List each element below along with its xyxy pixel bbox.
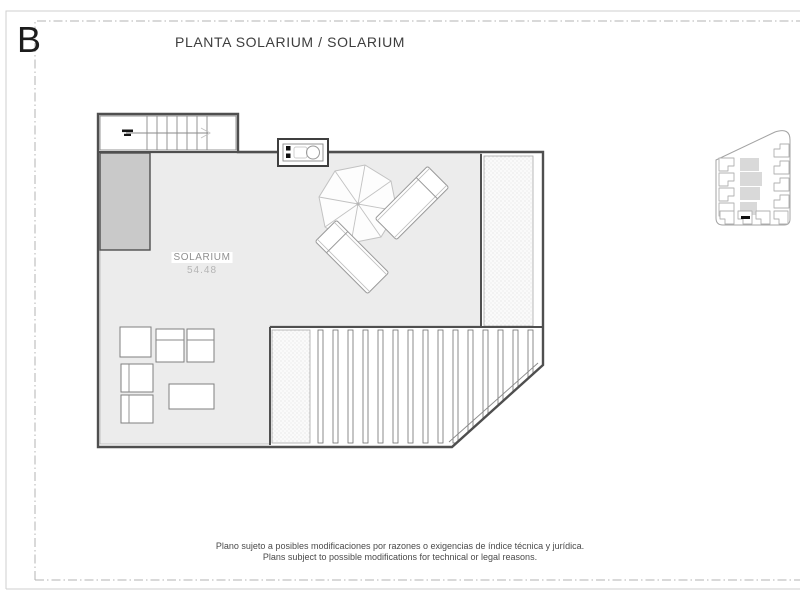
chair	[121, 395, 153, 423]
chair	[156, 329, 184, 362]
disclaimer-line-es: Plano sujeto a posibles modificaciones p…	[0, 541, 800, 552]
chair	[121, 364, 153, 392]
pergola-slats	[318, 330, 533, 443]
disclaimer: Plano sujeto a posibles modificaciones p…	[0, 541, 800, 563]
disclaimer-line-en: Plans subject to possible modifications …	[0, 552, 800, 563]
location-key-map	[716, 131, 790, 225]
room-name: SOLARIUM	[171, 252, 232, 263]
barbecue-icon	[278, 139, 328, 166]
chair	[187, 329, 214, 362]
plan-sheet: B PLANTA SOLARIUM / SOLARIUM SOLARIUM 54…	[0, 0, 800, 600]
floor-plan-drawing	[0, 0, 800, 600]
stair-shaft-block	[100, 153, 150, 250]
roof-strip-terrace	[272, 330, 310, 443]
roof-strip-right	[484, 156, 533, 326]
keymap-current-unit-marker-icon	[741, 216, 750, 219]
staircase	[100, 116, 236, 150]
room-label: SOLARIUM 54.48	[171, 247, 232, 276]
block-letter: B	[17, 22, 41, 58]
room-area: 54.48	[171, 265, 232, 276]
page-title: PLANTA SOLARIUM / SOLARIUM	[175, 34, 405, 50]
table	[169, 384, 214, 409]
chamfer-inner-line	[449, 363, 538, 442]
side-table	[120, 327, 151, 357]
